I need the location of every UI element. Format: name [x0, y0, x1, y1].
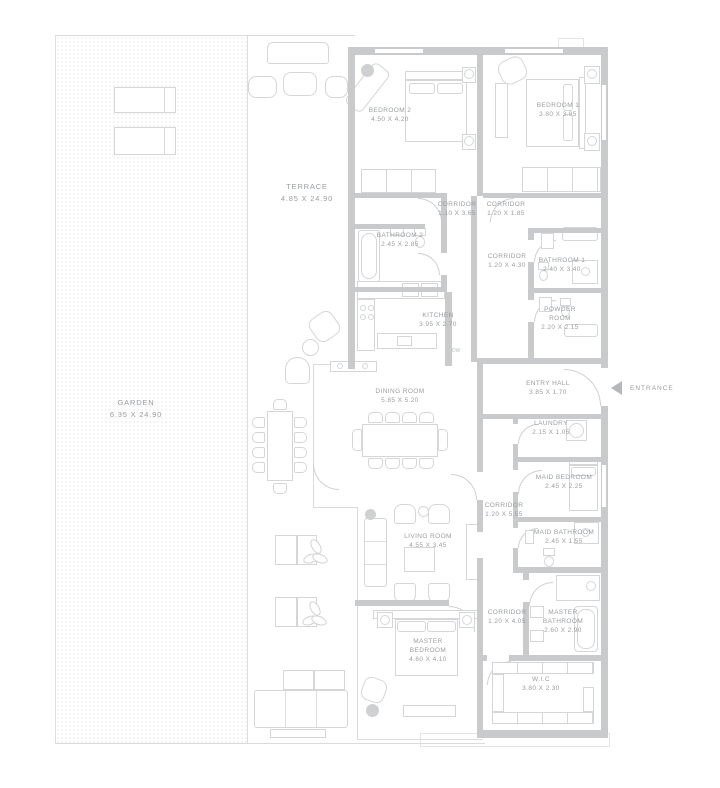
sun-lounger — [114, 87, 166, 113]
wall — [477, 420, 483, 730]
wall — [534, 288, 601, 293]
plant — [303, 542, 329, 568]
dining-chair — [368, 458, 383, 469]
room-name: TERRACE — [262, 181, 352, 193]
stove-burner — [360, 314, 366, 320]
lamp-icon — [462, 615, 472, 625]
room-name: CORRIDOR — [484, 252, 530, 261]
room-label-master-bathroom: MASTER BATHROOM 2.60 X 2.90 — [538, 608, 588, 635]
terrace-armchair — [325, 76, 348, 98]
closet-shelf — [492, 662, 594, 674]
door-arc — [313, 464, 339, 490]
lamp-icon — [587, 69, 597, 79]
wall — [477, 358, 608, 364]
door-gap — [513, 470, 518, 492]
door-gap — [477, 532, 483, 558]
room-label-bedroom-2: BEDROOM 2 4.50 X 4.20 — [350, 106, 430, 124]
room-name: DINING ROOM — [365, 387, 435, 396]
room-dims: 4.85 X 24.90 — [262, 193, 352, 205]
sun-lounger-back — [164, 127, 176, 155]
wardrobe — [361, 169, 436, 193]
room-label-terrace: TERRACE 4.85 X 24.90 — [262, 181, 352, 205]
room-label-corridor-c: CORRIDOR 1.20 X 4.30 — [484, 252, 530, 270]
room-dims: 3.85 X 1.70 — [518, 388, 578, 397]
wall — [477, 55, 483, 196]
window — [602, 85, 606, 140]
room-label-corridor-d: CORRIDOR 1.20 X 5.55 — [481, 501, 527, 519]
decor-bowl — [337, 363, 343, 369]
window — [505, 49, 563, 53]
room-label-entry-hall: ENTRY HALL 3.85 X 1.70 — [518, 379, 578, 397]
door-gap — [441, 253, 447, 275]
sofa — [364, 518, 387, 587]
dining-table — [362, 424, 438, 457]
glass-wall — [357, 507, 358, 602]
outdoor-chair — [294, 432, 307, 443]
dining-chair — [419, 458, 434, 469]
room-dims: 3.80 X 2.30 — [511, 684, 571, 693]
stove-burner — [368, 314, 374, 320]
wall — [348, 47, 355, 369]
door-gap — [513, 424, 518, 444]
entrance-arrow-icon — [611, 381, 622, 395]
room-label-dining-room: DINING ROOM 5.85 X 5.20 — [365, 387, 435, 405]
room-name: MAID BEDROOM — [527, 473, 601, 482]
room-dims: 2.45 X 1.55 — [524, 537, 604, 546]
terrace-armchair — [248, 76, 277, 98]
room-label-powder-room: POWDER ROOM 2.20 X 2.15 — [538, 305, 582, 332]
dining-chair — [385, 458, 400, 469]
closet-shelf — [492, 674, 504, 712]
outdoor-chair — [294, 462, 307, 473]
boundary-line — [55, 743, 485, 744]
room-dims: 5.85 X 5.20 — [365, 396, 435, 405]
room-name: MASTER BATHROOM — [538, 608, 588, 626]
room-name: MASTER BEDROOM — [403, 637, 453, 655]
lamp-icon — [464, 69, 474, 79]
terrace-console — [270, 729, 326, 738]
room-dims: 1.20 X 1.85 — [483, 209, 529, 218]
wardrobe — [522, 167, 601, 192]
pillow — [427, 621, 456, 632]
door-gap — [477, 472, 483, 500]
room-label-living-room: LIVING ROOM 4.55 X 3.45 — [393, 532, 463, 550]
door-gap — [523, 580, 529, 602]
room-label-corridor-e: CORRIDOR 1.20 X 4.05 — [484, 608, 530, 626]
floor-plan: DW — [0, 0, 720, 788]
room-label-maid-bathroom: MAID BATHROOM 2.45 X 1.55 — [524, 528, 604, 546]
room-name: CORRIDOR — [481, 501, 527, 510]
lamp-icon — [587, 136, 597, 146]
terrace-chair — [285, 357, 310, 384]
wall — [355, 224, 425, 229]
room-label-bathroom-1: BATHROOM 1 2.40 X 3.40 — [527, 256, 597, 274]
room-dims: 2.40 X 3.40 — [527, 265, 597, 274]
room-dims: 1.20 X 4.30 — [484, 261, 530, 270]
outdoor-chair — [252, 462, 265, 473]
stove-burner — [360, 305, 366, 311]
room-name: W.I.C — [511, 675, 571, 684]
room-name: LIVING ROOM — [393, 532, 463, 541]
closet-shelf — [492, 712, 594, 724]
glass-wall — [357, 739, 483, 740]
wall — [355, 193, 447, 198]
room-label-corridor-a: CORRIDOR 1.10 X 3.65 — [434, 200, 480, 218]
room-dims: 3.80 X 3.95 — [518, 110, 598, 119]
dishwasher-label: DW — [452, 348, 460, 354]
bench — [403, 705, 456, 717]
door-arc — [418, 253, 440, 275]
dining-chair — [385, 412, 400, 423]
shower-drain — [586, 581, 596, 591]
wall — [513, 517, 608, 522]
room-name: LAUNDRY — [523, 419, 579, 428]
room-dims: 2.45 X 2.25 — [527, 482, 601, 491]
wall — [513, 457, 608, 462]
room-label-wic: W.I.C 3.80 X 2.30 — [511, 675, 571, 693]
dining-chair — [438, 429, 448, 451]
room-dims: 2.60 X 2.90 — [538, 626, 588, 635]
wall — [477, 730, 608, 738]
wall — [477, 358, 483, 420]
room-label-garden: GARDEN 6.35 X 24.90 — [91, 397, 181, 421]
side-table — [418, 506, 429, 517]
entrance-label: ENTRANCE — [630, 385, 674, 392]
room-name: BATHROOM 2 — [365, 231, 435, 240]
glass-wall — [357, 602, 358, 740]
room-name: CORRIDOR — [434, 200, 480, 209]
room-name: POWDER ROOM — [538, 305, 582, 323]
room-label-bathroom-2: BATHROOM 2 2.45 X 2.85 — [365, 231, 435, 249]
room-label-master-bedroom: MASTER BEDROOM 4.60 X 4.10 — [403, 637, 453, 664]
room-dims: 6.35 X 24.90 — [91, 409, 181, 421]
door-gap — [528, 300, 534, 322]
boundary-line — [55, 35, 355, 36]
outdoor-dining-table — [267, 411, 293, 481]
door-gap — [601, 368, 608, 406]
room-dims: 4.55 X 3.45 — [393, 541, 463, 550]
stove-burner — [368, 305, 374, 311]
kitchen-sink — [397, 336, 412, 346]
toilet — [543, 548, 555, 556]
terrace-sofa — [267, 42, 329, 64]
closet-shelf — [583, 687, 594, 712]
decor-bowl — [362, 363, 368, 369]
terrace-sofa — [254, 690, 348, 728]
room-name: BEDROOM 1 — [518, 101, 598, 110]
terrace-sofa-cushion — [283, 670, 314, 690]
wall — [471, 196, 477, 362]
lamp-icon — [380, 615, 390, 625]
door-gap — [487, 655, 509, 661]
armchair — [428, 504, 450, 524]
dining-chair — [352, 429, 362, 451]
outdoor-chair — [273, 483, 287, 494]
outdoor-chair — [252, 432, 265, 443]
lounge-chair — [275, 597, 297, 627]
pillow — [437, 83, 463, 94]
pillow — [397, 621, 426, 632]
door-gap — [513, 528, 518, 548]
wall — [355, 600, 449, 606]
room-dims: 4.60 X 4.10 — [403, 655, 453, 664]
room-dims: 3.95 X 2.70 — [408, 320, 468, 329]
room-name: MAID BATHROOM — [524, 528, 604, 537]
room-dims: 2.20 X 2.15 — [538, 323, 582, 332]
terrace-coffee-table — [283, 72, 317, 96]
room-dims: 1.10 X 3.65 — [434, 209, 480, 218]
window — [602, 465, 606, 507]
lamp-icon — [464, 136, 474, 146]
room-label-corridor-b: CORRIDOR 1.20 X 1.85 — [483, 200, 529, 218]
room-dims: 2.45 X 2.85 — [365, 240, 435, 249]
outdoor-chair — [273, 399, 287, 410]
sink — [541, 233, 554, 249]
room-name: BEDROOM 2 — [350, 106, 430, 115]
outdoor-chair — [294, 447, 307, 458]
toilet-bowl — [544, 556, 554, 567]
outdoor-chair — [252, 417, 265, 428]
room-label-maid-bedroom: MAID BEDROOM 2.45 X 2.25 — [527, 473, 601, 491]
room-dims: 2.15 X 1.05 — [523, 428, 579, 437]
room-name: BATHROOM 1 — [527, 256, 597, 265]
decor-dot — [365, 509, 376, 520]
sun-lounger — [114, 127, 166, 155]
pillow — [409, 83, 435, 94]
dining-chair — [402, 458, 417, 469]
room-dims: 4.50 X 4.20 — [350, 115, 430, 124]
lounge-chair — [275, 535, 297, 565]
dining-chair — [419, 412, 434, 423]
glass-wall — [313, 507, 358, 508]
wall — [445, 292, 452, 366]
window — [375, 49, 423, 53]
room-name: CORRIDOR — [483, 200, 529, 209]
decor-dot — [366, 704, 379, 717]
coffee-table — [404, 547, 435, 572]
terrace-side-table — [302, 339, 319, 356]
outdoor-chair — [294, 417, 307, 428]
dining-chair — [368, 412, 383, 423]
bedroom-chair — [359, 675, 390, 706]
room-dims: 1.20 X 5.55 — [481, 510, 527, 519]
door-arc — [529, 582, 553, 606]
room-label-kitchen: KITCHEN 3.95 X 2.70 — [408, 311, 468, 329]
room-dims: 1.20 X 4.05 — [484, 617, 530, 626]
wall — [528, 228, 601, 233]
room-name: ENTRY HALL — [518, 379, 578, 388]
wall — [483, 193, 601, 198]
sun-lounger-back — [164, 87, 176, 113]
room-label-laundry: LAUNDRY 2.15 X 1.05 — [523, 419, 579, 437]
wardrobe — [495, 83, 508, 138]
outdoor-chair — [252, 447, 265, 458]
terrace-sofa-cushion — [314, 670, 345, 690]
room-name: CORRIDOR — [484, 608, 530, 617]
armchair — [394, 504, 416, 524]
room-name: KITCHEN — [408, 311, 468, 320]
bed-headboard — [405, 71, 467, 80]
decor-dot — [361, 64, 374, 77]
door-arc — [451, 474, 477, 500]
dining-chair — [402, 412, 417, 423]
room-label-bedroom-1: BEDROOM 1 3.80 X 3.95 — [518, 101, 598, 119]
glass-wall — [313, 364, 314, 508]
wall — [355, 287, 447, 292]
room-name: GARDEN — [91, 397, 181, 409]
plant — [302, 604, 328, 630]
